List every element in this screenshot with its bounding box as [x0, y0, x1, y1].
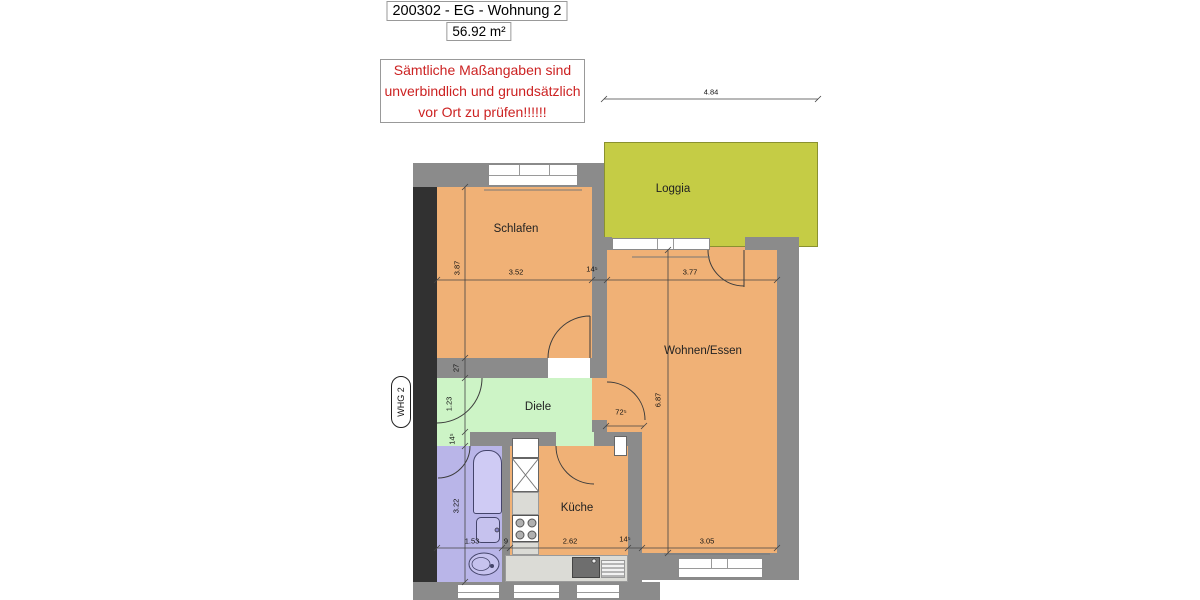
window-kueche-left — [513, 584, 560, 599]
wall-schlafen-diele-right — [590, 358, 607, 378]
dim-loggia-width: 4.84 — [704, 88, 719, 97]
kitchen-counter-upper — [512, 492, 539, 515]
dim-wall-schlafen-we: 14⁵ — [586, 265, 597, 274]
disclaimer-line-1: Sämtliche Maßangaben sind — [381, 60, 584, 81]
kitchen-drainer — [601, 560, 625, 578]
dim-wall-kueche-we: 14⁵ — [619, 535, 630, 544]
doorway-diele-wohnen — [592, 378, 607, 422]
window-mullion — [679, 568, 762, 569]
bathroom-sink — [476, 517, 500, 543]
bathtub — [473, 450, 502, 514]
wall-loggia-right-stub — [745, 237, 799, 250]
window-mullion — [727, 559, 728, 568]
wall-diele-door-stub — [592, 420, 607, 432]
window-mullion — [577, 592, 619, 593]
dim-schlafen-depth: 3.87 — [453, 261, 462, 276]
kitchen-cabinet — [512, 438, 539, 458]
wall-left-shaft — [413, 187, 437, 582]
room-loggia-floor — [604, 142, 818, 247]
dim-we-bottom: 3.05 — [700, 537, 715, 546]
dim-we-door: 72⁵ — [615, 408, 626, 417]
dim-bad-depth: 3.22 — [452, 499, 461, 514]
kitchen-tall-unit — [512, 458, 539, 492]
window-mullion — [514, 592, 559, 593]
window-mullion — [489, 175, 577, 176]
kitchen-sink — [572, 557, 600, 578]
dim-schlafen-width: 3.52 — [509, 268, 524, 277]
label-wohnen-essen: Wohnen/Essen — [664, 345, 742, 357]
unit-badge-label: WHG 2 — [396, 387, 406, 417]
dim-line-loggia — [601, 96, 821, 102]
window-mullion — [549, 165, 550, 175]
dim-partition: 9 — [504, 537, 508, 546]
dim-diele-depth: 1.23 — [445, 397, 454, 412]
wall-loggia-left-stub — [604, 237, 612, 250]
unit-badge: WHG 2 — [391, 376, 411, 428]
floorplan-page: 200302 - EG - Wohnung 2 56.92 m² Sämtlic… — [0, 0, 1200, 600]
disclaimer-line-2: unverbindlich und grundsätzlich — [381, 81, 584, 102]
measurement-disclaimer: Sämtliche Maßangaben sind unverbindlich … — [380, 59, 585, 123]
window-mullion — [711, 559, 712, 568]
kitchen-counter-mid — [512, 542, 539, 555]
disclaimer-line-3: vor Ort zu prüfen!!!!!! — [381, 102, 584, 123]
window-mullion — [657, 239, 658, 249]
window-kueche-right — [576, 584, 620, 599]
window-bad — [457, 584, 500, 599]
window-mullion — [458, 592, 499, 593]
label-kueche: Küche — [561, 502, 594, 514]
wall-right — [777, 250, 799, 580]
window-wohnen-loggia — [612, 238, 710, 250]
label-loggia: Loggia — [656, 183, 691, 195]
dim-diele-wall-bottom: 14⁵ — [448, 433, 457, 444]
window-mullion — [673, 239, 674, 249]
kitchen-duct — [614, 436, 627, 456]
dim-diele-wall-top: 27 — [452, 364, 461, 372]
label-schlafen: Schlafen — [494, 223, 539, 235]
label-diele: Diele — [525, 401, 551, 413]
dim-we-depth: 6.87 — [654, 393, 663, 408]
plan-area: 56.92 m² — [446, 22, 511, 41]
kitchen-stove — [512, 515, 539, 542]
dim-kueche-width: 2.62 — [563, 537, 578, 546]
dim-we-width: 3.77 — [683, 268, 698, 277]
window-wohnen-bottom — [678, 558, 763, 578]
plan-title: 200302 - EG - Wohnung 2 — [386, 1, 567, 21]
window-schlafen — [488, 164, 578, 186]
window-mullion — [519, 165, 520, 175]
dim-bad-width: 1.53 — [465, 537, 480, 546]
wall-kueche-wohnen — [628, 432, 642, 582]
